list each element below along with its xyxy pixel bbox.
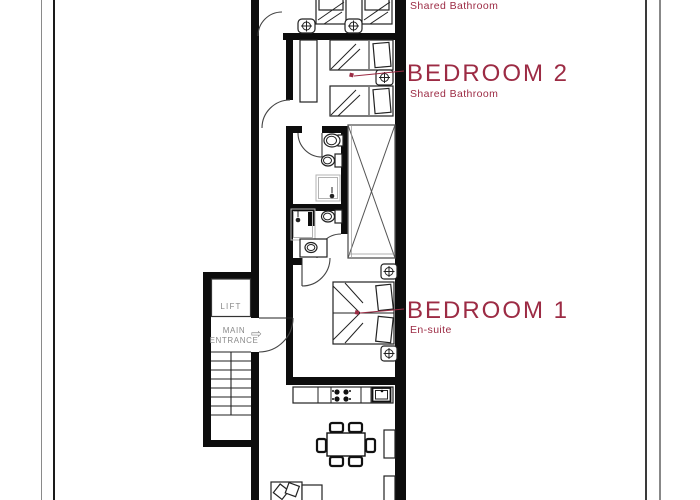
- sofa-icon: [271, 482, 322, 500]
- entrance-direction-arrow-icon: ⇨: [251, 327, 262, 340]
- door-arc-top-corridor: [258, 12, 282, 36]
- void-shaft: [348, 125, 395, 258]
- nightstand-icon: [298, 19, 315, 33]
- nightstand-icon: [381, 346, 397, 361]
- wardrobe-icon: [300, 40, 317, 102]
- chair-icon: [330, 457, 343, 466]
- bedroom2-label: BEDROOM 2: [407, 60, 569, 88]
- top-room-sublabel: Shared Bathroom: [410, 0, 498, 12]
- bedroom1-sublabel: En-suite: [410, 324, 452, 336]
- nightstand-icon: [345, 19, 362, 33]
- bedroom2-sublabel: Shared Bathroom: [410, 88, 498, 100]
- chair-icon: [349, 457, 362, 466]
- door-arc-bedroom2: [262, 100, 290, 128]
- lift-label: LIFT: [206, 302, 256, 312]
- floorplan-drawing: [0, 0, 700, 500]
- door-arc-bedroom1: [302, 258, 330, 286]
- shower-icon: [316, 175, 340, 201]
- ensuite-bathroom-fixtures: [291, 209, 342, 257]
- basin-icon: [300, 239, 327, 257]
- shared-bathroom-fixtures: [316, 134, 343, 201]
- label-anchor-dot: [349, 73, 354, 78]
- kitchen-counter-icon: [293, 387, 393, 403]
- bedroom1-label: BEDROOM 1: [407, 297, 569, 325]
- single-bed-icon: [330, 40, 393, 70]
- single-bed-icon: [330, 86, 393, 116]
- dining-table-icon: [317, 423, 375, 466]
- toilet-icon: [322, 210, 343, 223]
- stairs: [211, 352, 251, 415]
- nightstand-icon: [381, 264, 397, 279]
- single-bed-icon: [316, 0, 346, 24]
- cabinet-icon: [384, 430, 395, 500]
- door-arc-shared-bathroom: [298, 133, 322, 157]
- chair-icon: [317, 439, 326, 452]
- chair-icon: [349, 423, 362, 432]
- label-anchor-dot: [355, 310, 360, 315]
- toilet-icon: [322, 154, 343, 167]
- floorplan-canvas: Shared Bathroom BEDROOM 2 Shared Bathroo…: [0, 0, 700, 500]
- single-bed-icon: [362, 0, 392, 24]
- top-room-furniture: [298, 0, 392, 33]
- basin-icon: [324, 134, 343, 147]
- chair-icon: [330, 423, 343, 432]
- chair-icon: [366, 439, 375, 452]
- sink-icon: [373, 388, 391, 402]
- bedroom2-furniture: [300, 40, 393, 116]
